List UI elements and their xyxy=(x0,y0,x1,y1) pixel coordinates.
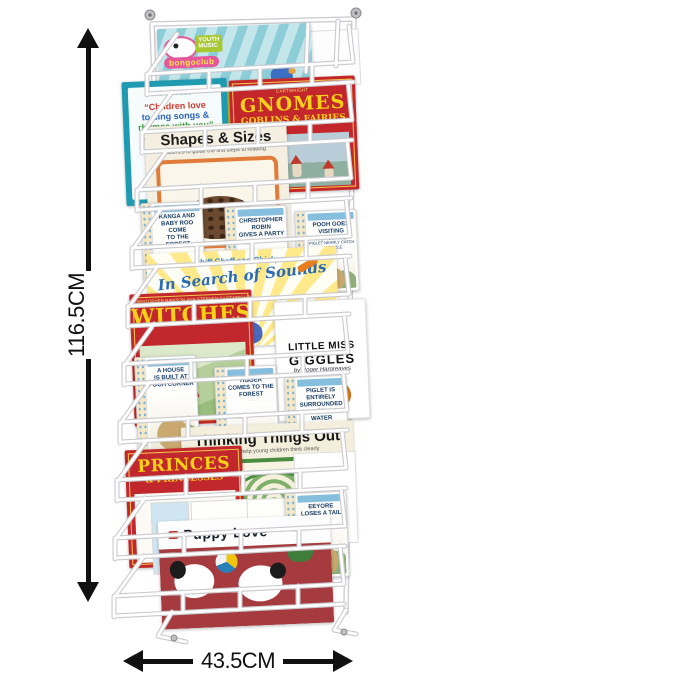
witches-title: WITCHES xyxy=(130,301,253,327)
series-banner xyxy=(307,212,353,221)
arrow-left-icon xyxy=(123,650,143,672)
book-puppy-love: Puppy Love xyxy=(158,514,334,629)
series-banner xyxy=(297,494,343,503)
surestart-header: SureStart xyxy=(128,88,221,99)
pooh2-title-l3: GIVES A PARTY xyxy=(238,231,284,240)
pooh4-title-l3: POOH CORNER xyxy=(148,381,194,390)
puppy-love-title: Puppy Love xyxy=(183,523,268,543)
ball-illustration xyxy=(215,550,238,573)
height-dimension-arrow: 116.5CM xyxy=(76,28,100,602)
series-banner xyxy=(237,208,283,217)
product-photo-book-rack: YOUTH MUSIC bongoclub SureStart “Childre… xyxy=(0,0,700,700)
bongo-club-label: bongoclub xyxy=(164,56,220,69)
puppy-cover-illustration xyxy=(159,542,334,629)
bongo-brand-line2: MUSIC xyxy=(198,43,218,50)
width-dimension-label: 43.5CM xyxy=(193,648,283,674)
series-banner xyxy=(297,378,343,387)
pooh5-title-l3: FOREST xyxy=(228,391,274,400)
series-banner xyxy=(153,204,199,213)
series-banner xyxy=(147,358,193,367)
height-dimension-label: 116.5CM xyxy=(64,273,90,357)
bowl-illustration xyxy=(287,549,313,562)
arrow-right-icon xyxy=(333,650,353,672)
series-banner xyxy=(227,368,273,377)
arrow-up-icon xyxy=(77,28,99,48)
publisher-mark-icon xyxy=(168,531,178,539)
pooh1-title-l3: TO THE FOREST xyxy=(155,234,202,250)
bongo-club-logo: YOUTH MUSIC bongoclub xyxy=(163,34,228,71)
arrow-down-icon xyxy=(77,582,99,602)
width-dimension-arrow: 43.5CM xyxy=(123,649,353,673)
